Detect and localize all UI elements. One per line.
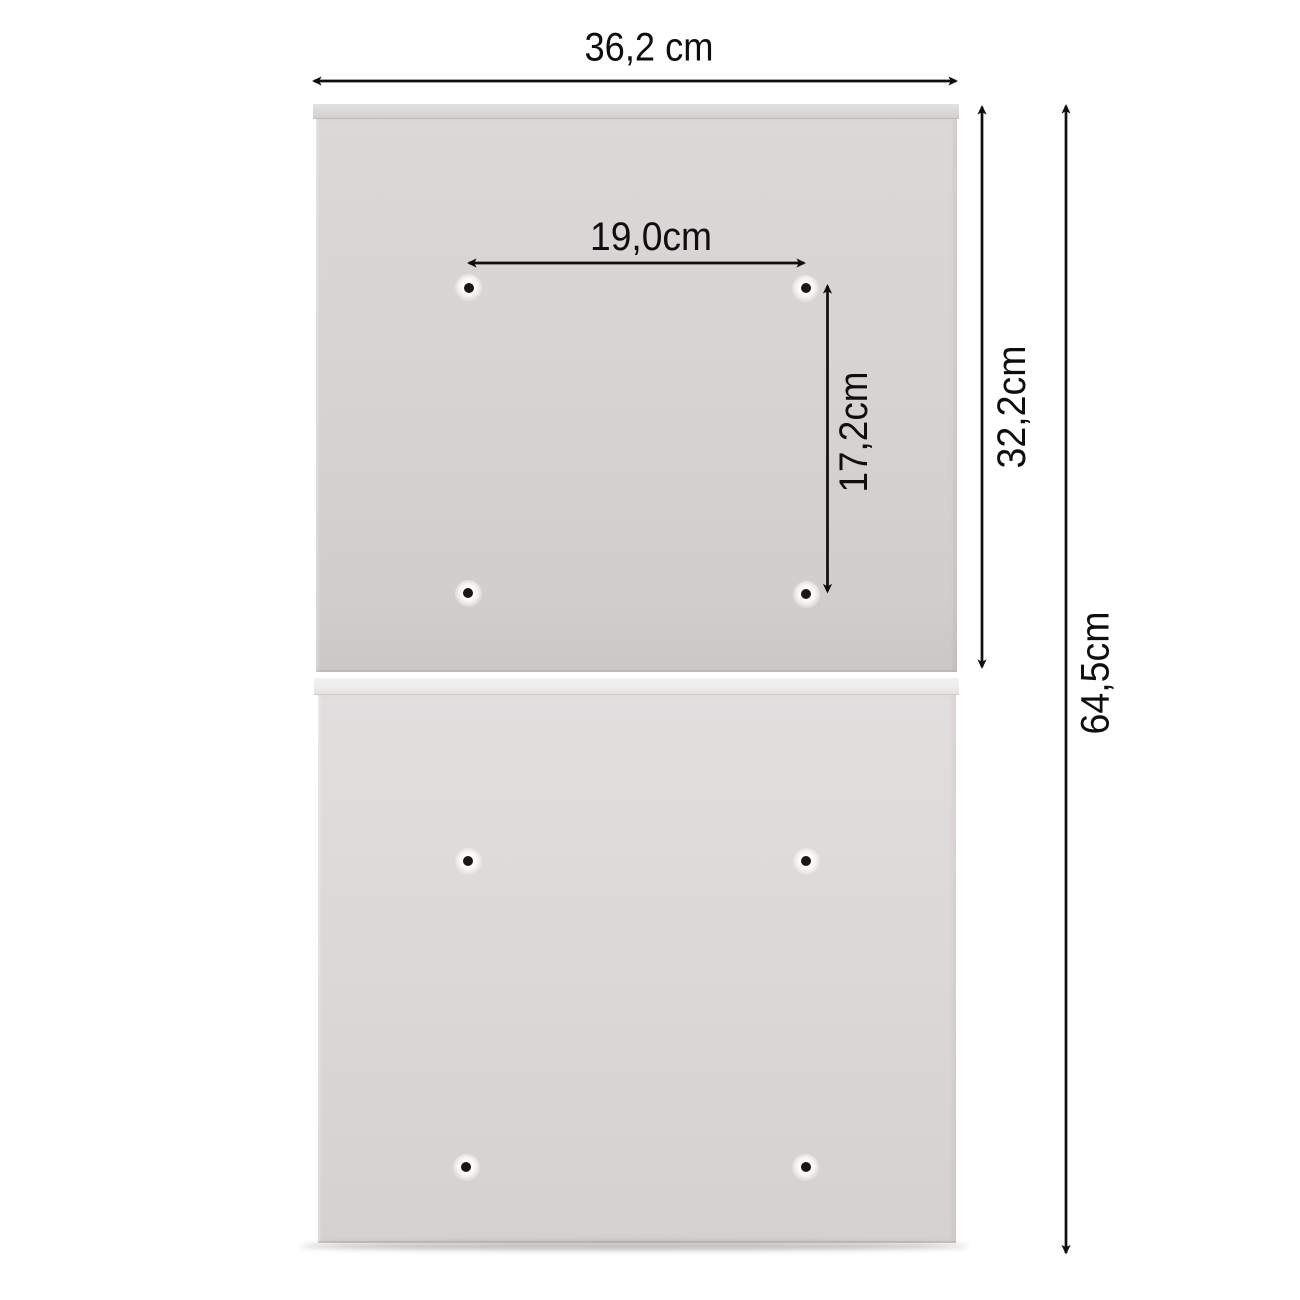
svg-text:36,2 cm: 36,2 cm <box>585 26 714 70</box>
svg-text:32,2cm: 32,2cm <box>990 346 1034 469</box>
svg-text:19,0cm: 19,0cm <box>590 215 712 259</box>
svg-text:64,5cm: 64,5cm <box>1074 612 1118 735</box>
svg-text:17,2cm: 17,2cm <box>832 372 876 493</box>
